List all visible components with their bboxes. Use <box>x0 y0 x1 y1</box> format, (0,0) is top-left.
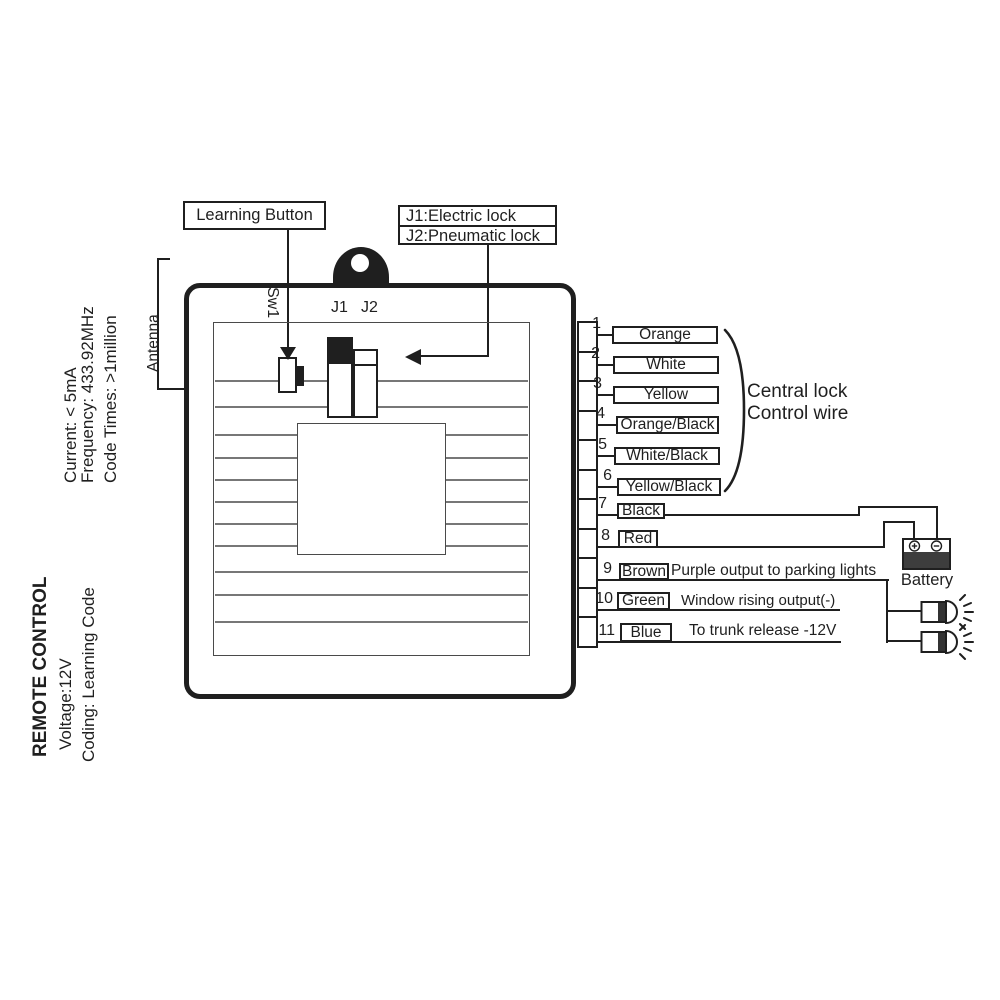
down-arrow-icon <box>280 347 296 360</box>
title-remote-control: REMOTE CONTROL <box>30 577 52 758</box>
wire-number: 3 <box>574 375 602 392</box>
wiring-diagram: Current: < 5mA Frequency: 433.92MHz Code… <box>0 0 1000 1000</box>
group-label-line2: Control wire <box>747 403 848 425</box>
pcb-trace <box>215 571 528 573</box>
antenna-wire-bottom <box>157 388 186 390</box>
jumper-callout-j1: J1:Electric lock <box>400 207 555 225</box>
wire-number: 11 <box>587 622 615 639</box>
wire-number: 4 <box>577 405 605 422</box>
learning-button-label: Learning Button <box>196 206 313 225</box>
group-label-line1: Central lock <box>747 381 848 403</box>
wire-color-box: White <box>613 356 719 374</box>
wire-color-box: Blue <box>620 623 672 642</box>
jumper-callout-j2: J2:Pneumatic lock <box>400 225 555 245</box>
ic-chip <box>297 423 446 555</box>
wire-color-box: Brown <box>619 563 669 580</box>
wire7-top-run <box>858 506 938 508</box>
wire-note: To trunk release -12V <box>689 622 836 639</box>
wire-number: 1 <box>573 315 601 332</box>
wire-color-box: Orange/Black <box>616 416 719 434</box>
wire-number: 2 <box>572 345 600 362</box>
wire8-riser <box>883 522 885 548</box>
wire-color-box: Black <box>617 503 665 519</box>
wire8-drop-to-battery <box>913 521 915 539</box>
battery-terminals-icon <box>902 538 951 552</box>
mounting-hole <box>351 254 369 272</box>
spec-voltage: Voltage:12V <box>56 658 76 750</box>
j2-header <box>353 349 378 418</box>
wire-number: 9 <box>584 560 612 577</box>
antenna-label: Antenna <box>145 314 163 372</box>
sw1-switch-knob <box>295 366 304 386</box>
wire-color-box: Yellow <box>613 386 719 404</box>
wire-number: 7 <box>579 495 607 512</box>
wire-color-box: White/Black <box>614 447 720 465</box>
battery-body-fill <box>904 552 949 568</box>
wire8-top-run <box>883 521 915 523</box>
wire-number: 10 <box>585 590 613 607</box>
wire-number: 5 <box>579 436 607 453</box>
jumper-callout: J1:Electric lock J2:Pneumatic lock <box>398 205 557 245</box>
battery-label: Battery <box>895 571 959 590</box>
j2-header-divider <box>355 364 376 366</box>
wire-color-box: Yellow/Black <box>617 478 721 496</box>
pcb-trace <box>215 621 528 623</box>
wire-note: Window rising output(-) <box>681 592 835 609</box>
wire-number: 6 <box>584 467 612 484</box>
wire-color-box: Red <box>618 530 658 548</box>
antenna-wire-top-tick <box>157 258 170 260</box>
spec-code-times: Code Times: >1million <box>101 315 121 483</box>
j1-jumper-cap <box>327 337 353 362</box>
pcb-trace <box>215 594 528 596</box>
wire-number: 8 <box>582 527 610 544</box>
j2-label: J2 <box>361 299 378 317</box>
j1-label: J1 <box>331 299 348 317</box>
trunk-light-bulb-icon <box>920 624 978 660</box>
wire-note: Purple output to parking lights <box>671 562 876 579</box>
spec-frequency: Frequency: 433.92MHz <box>78 306 98 483</box>
antenna-wire-vertical <box>157 258 159 390</box>
wire7-drop-to-battery <box>936 506 938 539</box>
group-label: Central lock Control wire <box>747 381 848 425</box>
wire-color-box: Green <box>617 592 670 610</box>
left-arrow-icon <box>405 349 421 365</box>
spec-coding: Coding: Learning Code <box>79 587 99 762</box>
learning-button-callout: Learning Button <box>183 201 326 230</box>
j1-header <box>327 362 353 418</box>
wire-color-box: Orange <box>612 326 718 344</box>
sw1-label: Sw1 <box>262 287 282 318</box>
